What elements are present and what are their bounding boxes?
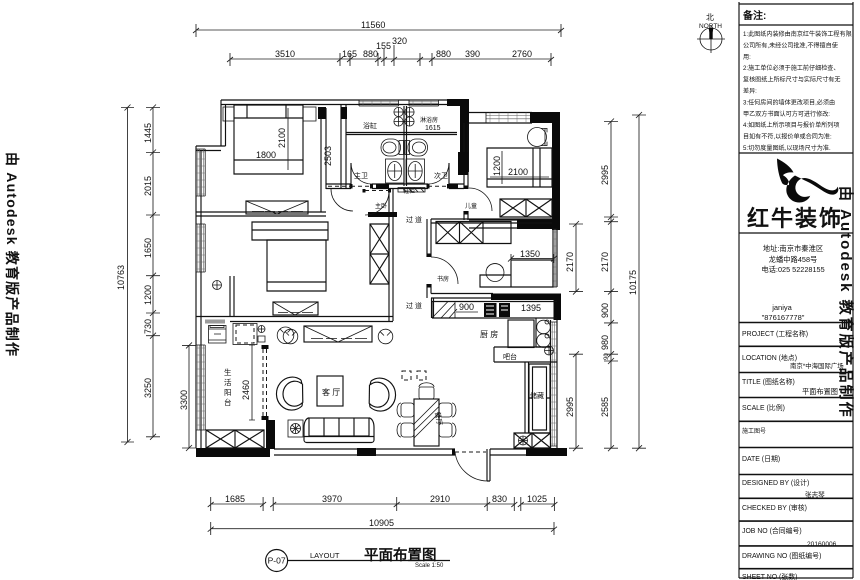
- svg-text:南京*中海国际广场: 南京*中海国际广场: [790, 361, 844, 370]
- svg-text:DESIGNED BY (设计): DESIGNED BY (设计): [742, 478, 809, 487]
- svg-text:次卫: 次卫: [434, 171, 448, 180]
- svg-text:980: 980: [600, 335, 610, 350]
- svg-text:SCALE (比例): SCALE (比例): [742, 403, 785, 412]
- svg-text:龙蟠中路458号: 龙蟠中路458号: [769, 255, 818, 264]
- svg-text:LOCATION (地点): LOCATION (地点): [742, 353, 797, 362]
- svg-text:过 道: 过 道: [406, 301, 422, 310]
- svg-text:10905: 10905: [369, 518, 394, 528]
- svg-text:客 厅: 客 厅: [322, 387, 340, 397]
- svg-text:10763: 10763: [116, 265, 126, 290]
- svg-text:10175: 10175: [628, 270, 638, 295]
- svg-text:主卫: 主卫: [354, 171, 368, 180]
- svg-text:2760: 2760: [512, 49, 532, 59]
- svg-text:淋浴房: 淋浴房: [420, 116, 438, 124]
- svg-text:2995: 2995: [565, 397, 575, 417]
- svg-text:过 道: 过 道: [406, 215, 422, 224]
- svg-text:PROJECT (工程名称): PROJECT (工程名称): [742, 329, 808, 338]
- svg-text:2910: 2910: [430, 494, 450, 504]
- svg-text:1445: 1445: [143, 123, 153, 143]
- svg-text:储藏: 储藏: [530, 391, 544, 400]
- svg-text:1800: 1800: [256, 150, 276, 160]
- svg-text:活: 活: [224, 377, 232, 387]
- svg-text:备注:: 备注:: [742, 9, 766, 22]
- svg-text:2460: 2460: [241, 380, 251, 400]
- svg-text:DATE (日期): DATE (日期): [742, 455, 780, 463]
- svg-text:2100: 2100: [277, 128, 287, 148]
- svg-text:900: 900: [600, 303, 610, 318]
- svg-text:复核图纸上所标尺寸与实际尺寸有无: 复核图纸上所标尺寸与实际尺寸有无: [743, 76, 841, 84]
- svg-text:2:施工单位必须于施工前仔细检查、: 2:施工单位必须于施工前仔细检查、: [743, 64, 840, 72]
- svg-text:1650: 1650: [143, 238, 153, 258]
- svg-text:2503: 2503: [323, 146, 333, 166]
- svg-text:900: 900: [459, 302, 474, 312]
- svg-text:2015: 2015: [143, 176, 153, 196]
- svg-text:1200: 1200: [143, 285, 153, 305]
- svg-text:390: 390: [465, 49, 480, 59]
- svg-text:公司所有,未经公司批准,不得擅自使: 公司所有,未经公司批准,不得擅自使: [743, 41, 838, 49]
- svg-text:目如有不符,以报价单或合同为准:: 目如有不符,以报价单或合同为准:: [743, 133, 832, 141]
- svg-text:LAYOUT: LAYOUT: [310, 551, 340, 560]
- svg-text:主卧: 主卧: [375, 202, 387, 210]
- svg-text:平面布置图: 平面布置图: [364, 546, 437, 564]
- svg-text:880: 880: [436, 49, 451, 59]
- svg-text:janiya: janiya: [771, 303, 792, 312]
- svg-text:由 Autodesk 教育版产品制作: 由 Autodesk 教育版产品制作: [4, 152, 20, 357]
- svg-text:730: 730: [143, 319, 153, 334]
- svg-text:书房: 书房: [437, 275, 449, 283]
- svg-text:1395: 1395: [521, 303, 541, 313]
- svg-text:90: 90: [604, 353, 610, 360]
- svg-text:2995: 2995: [600, 165, 610, 185]
- svg-text:155: 155: [376, 41, 391, 51]
- svg-text:2100: 2100: [508, 167, 528, 177]
- svg-text:320: 320: [392, 36, 407, 46]
- svg-text:浴缸: 浴缸: [363, 121, 377, 130]
- svg-text:2170: 2170: [565, 252, 575, 272]
- svg-text:1025: 1025: [527, 494, 547, 504]
- svg-text:3:任何房间的墙体更改项目,必须由: 3:任何房间的墙体更改项目,必须由: [743, 98, 835, 106]
- svg-text:CHECKED BY (审核): CHECKED BY (审核): [742, 503, 807, 512]
- svg-text:1350: 1350: [520, 249, 540, 259]
- svg-text:1685: 1685: [225, 494, 245, 504]
- svg-text:儿童: 儿童: [465, 202, 477, 210]
- svg-text:P-07: P-07: [268, 556, 286, 566]
- svg-text:电话:025 52228155: 电话:025 52228155: [761, 265, 824, 274]
- svg-text:北: 北: [706, 13, 714, 22]
- svg-text:鞋柜: 鞋柜: [403, 187, 415, 195]
- svg-text:甲乙双方书面认可方可进行修改:: 甲乙双方书面认可方可进行修改:: [743, 110, 830, 118]
- svg-text:4:如图纸上所示项目与报价单所列项: 4:如图纸上所示项目与报价单所列项: [743, 121, 840, 129]
- svg-text:地址:南京市秦淮区: 地址:南京市秦淮区: [763, 244, 823, 253]
- svg-text:20160006: 20160006: [807, 541, 837, 548]
- svg-text:2585: 2585: [600, 397, 610, 417]
- svg-text:平面布置图: 平面布置图: [802, 387, 838, 396]
- svg-text:JOB NO (合同编号): JOB NO (合同编号): [742, 526, 802, 535]
- svg-text:3970: 3970: [322, 494, 342, 504]
- svg-text:1615: 1615: [425, 125, 441, 132]
- svg-text:1:此图纸内装修由南京红牛装饰工程有限: 1:此图纸内装修由南京红牛装饰工程有限: [743, 30, 852, 38]
- svg-text:165: 165: [342, 49, 357, 59]
- svg-text:3250: 3250: [143, 378, 153, 398]
- svg-text:张志琴: 张志琴: [805, 490, 825, 499]
- svg-text:DRAWING NO (图纸编号): DRAWING NO (图纸编号): [742, 551, 821, 560]
- svg-text:1200: 1200: [492, 156, 502, 176]
- svg-text:吧台: 吧台: [503, 352, 517, 361]
- svg-text:厨 房: 厨 房: [480, 329, 498, 339]
- svg-text:差异:: 差异:: [743, 87, 757, 95]
- svg-text:施工图号: 施工图号: [742, 427, 766, 435]
- svg-text:3510: 3510: [275, 49, 295, 59]
- svg-text:阳: 阳: [224, 388, 232, 397]
- svg-text:Scale 1:50: Scale 1:50: [415, 563, 444, 569]
- svg-text:TITLE (图纸名称): TITLE (图纸名称): [742, 377, 795, 386]
- svg-text:SHEET NO (张数): SHEET NO (张数): [742, 572, 797, 580]
- svg-text:红牛装饰: 红牛装饰: [747, 206, 843, 231]
- svg-text:3300: 3300: [179, 390, 189, 410]
- svg-text:"876167778": "876167778": [762, 313, 805, 322]
- svg-text:5:切勿度量图纸,以现场尺寸为准.: 5:切勿度量图纸,以现场尺寸为准.: [743, 144, 831, 152]
- svg-text:生: 生: [224, 367, 232, 377]
- svg-text:用:: 用:: [743, 54, 751, 61]
- svg-text:830: 830: [492, 494, 507, 504]
- svg-text:2170: 2170: [600, 252, 610, 272]
- svg-text:11560: 11560: [361, 20, 385, 30]
- svg-text:台: 台: [224, 397, 232, 407]
